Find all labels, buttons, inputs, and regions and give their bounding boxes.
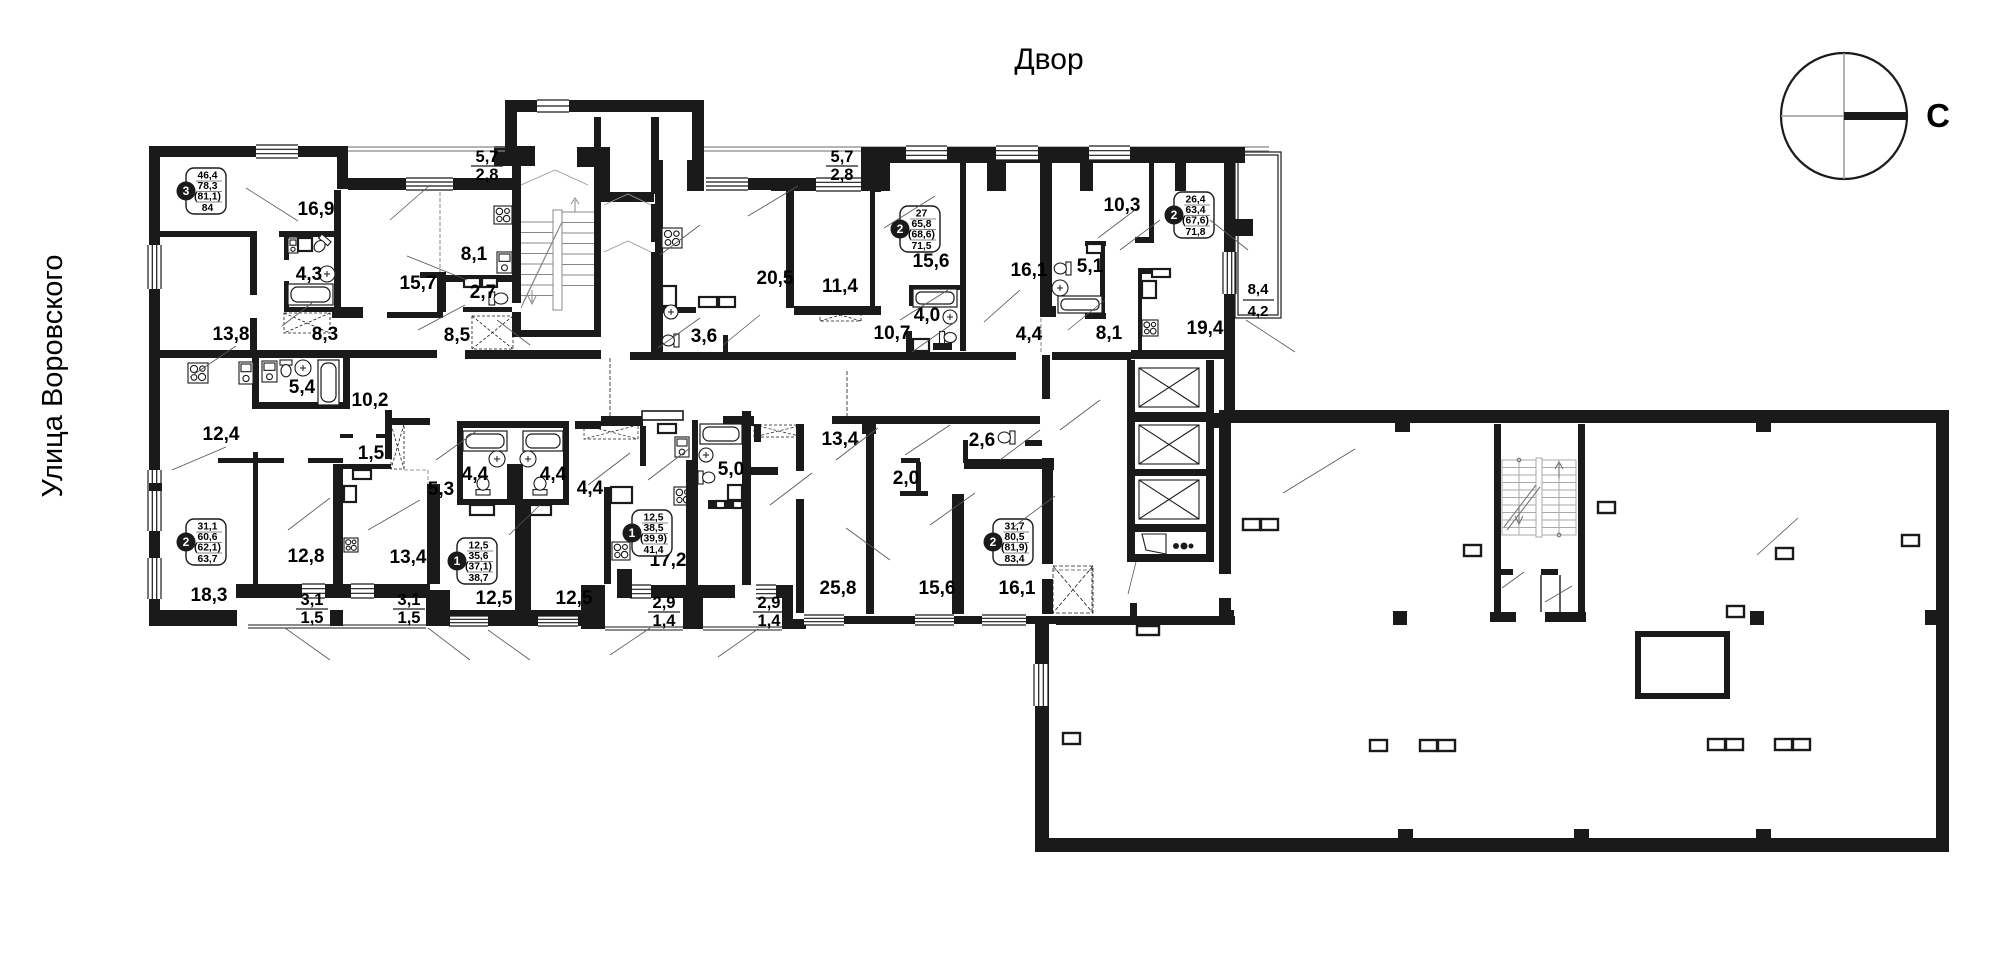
svg-text:12,5: 12,5 bbox=[468, 541, 488, 552]
svg-text:3,1: 3,1 bbox=[301, 591, 324, 609]
svg-text:8,1: 8,1 bbox=[1096, 323, 1123, 344]
svg-text:46,4: 46,4 bbox=[197, 171, 217, 182]
svg-text:10,3: 10,3 bbox=[1104, 195, 1141, 216]
svg-text:8,4: 8,4 bbox=[1248, 281, 1270, 298]
svg-text:26,4: 26,4 bbox=[1185, 195, 1205, 206]
svg-text:2,6: 2,6 bbox=[969, 430, 995, 451]
svg-text:13,4: 13,4 bbox=[390, 547, 427, 568]
svg-text:38,5: 38,5 bbox=[643, 523, 663, 534]
svg-text:19,4: 19,4 bbox=[1187, 318, 1224, 339]
svg-text:3: 3 bbox=[183, 184, 190, 198]
svg-text:78,3: 78,3 bbox=[197, 181, 217, 192]
svg-text:12,5: 12,5 bbox=[643, 513, 663, 524]
svg-text:2,7: 2,7 bbox=[470, 282, 496, 303]
svg-text:10,2: 10,2 bbox=[352, 390, 389, 411]
svg-text:2,8: 2,8 bbox=[831, 166, 854, 184]
svg-text:2: 2 bbox=[1171, 208, 1178, 222]
svg-text:63,7: 63,7 bbox=[197, 554, 217, 565]
svg-text:71,8: 71,8 bbox=[1185, 227, 1205, 238]
svg-text:16,1: 16,1 bbox=[999, 578, 1036, 599]
svg-text:12,4: 12,4 bbox=[203, 424, 240, 445]
svg-text:4,3: 4,3 bbox=[296, 264, 322, 285]
svg-text:18,3: 18,3 bbox=[191, 585, 228, 606]
svg-text:2,8: 2,8 bbox=[476, 166, 499, 184]
svg-text:60,6: 60,6 bbox=[197, 532, 217, 543]
svg-text:(39,9): (39,9) bbox=[640, 534, 667, 545]
svg-text:12,8: 12,8 bbox=[288, 546, 325, 567]
svg-text:2,9: 2,9 bbox=[653, 594, 676, 612]
svg-text:Двор: Двор bbox=[1014, 43, 1083, 76]
svg-text:71,5: 71,5 bbox=[911, 241, 931, 252]
svg-text:12,5: 12,5 bbox=[476, 588, 513, 609]
svg-text:20,5: 20,5 bbox=[757, 268, 794, 289]
svg-text:2: 2 bbox=[990, 535, 997, 549]
svg-text:4,4: 4,4 bbox=[1016, 324, 1043, 345]
svg-text:(67,6): (67,6) bbox=[1182, 216, 1209, 227]
svg-text:31,1: 31,1 bbox=[197, 522, 217, 533]
svg-text:(81,9): (81,9) bbox=[1001, 543, 1028, 554]
svg-text:27: 27 bbox=[916, 209, 928, 220]
svg-text:31,7: 31,7 bbox=[1004, 522, 1024, 533]
svg-text:84: 84 bbox=[202, 203, 214, 214]
svg-text:4,4: 4,4 bbox=[540, 464, 567, 485]
svg-text:4,0: 4,0 bbox=[914, 305, 940, 326]
svg-text:38,7: 38,7 bbox=[468, 573, 488, 584]
svg-text:83,4: 83,4 bbox=[1004, 554, 1024, 565]
svg-text:12,5: 12,5 bbox=[556, 588, 593, 609]
svg-text:5,7: 5,7 bbox=[831, 148, 854, 166]
svg-text:1: 1 bbox=[454, 554, 461, 568]
svg-text:2: 2 bbox=[897, 222, 904, 236]
svg-text:5,3: 5,3 bbox=[428, 479, 454, 500]
svg-text:65,8: 65,8 bbox=[911, 219, 931, 230]
svg-text:8,1: 8,1 bbox=[461, 244, 488, 265]
svg-text:5,7: 5,7 bbox=[476, 148, 499, 166]
svg-text:5,0: 5,0 bbox=[718, 459, 744, 480]
svg-text:5,1: 5,1 bbox=[1077, 256, 1104, 277]
svg-text:15,7: 15,7 bbox=[400, 273, 437, 294]
svg-text:4,4: 4,4 bbox=[462, 464, 489, 485]
svg-text:2,9: 2,9 bbox=[758, 594, 781, 612]
svg-text:(37,1): (37,1) bbox=[465, 562, 492, 573]
svg-text:3,1: 3,1 bbox=[398, 591, 421, 609]
svg-text:13,8: 13,8 bbox=[213, 324, 250, 345]
svg-text:4,2: 4,2 bbox=[1248, 303, 1269, 320]
svg-text:1,5: 1,5 bbox=[358, 443, 385, 464]
svg-text:16,1: 16,1 bbox=[1011, 260, 1048, 281]
svg-text:1,5: 1,5 bbox=[398, 609, 421, 627]
svg-text:11,4: 11,4 bbox=[822, 276, 858, 297]
svg-text:41,4: 41,4 bbox=[643, 545, 663, 556]
svg-text:2: 2 bbox=[183, 535, 190, 549]
svg-text:2,0: 2,0 bbox=[893, 468, 919, 489]
svg-text:5,4: 5,4 bbox=[289, 377, 316, 398]
svg-text:35,6: 35,6 bbox=[468, 551, 488, 562]
svg-text:8,5: 8,5 bbox=[444, 325, 471, 346]
svg-text:80,5: 80,5 bbox=[1004, 532, 1024, 543]
svg-text:15,6: 15,6 bbox=[913, 251, 950, 272]
svg-text:3,6: 3,6 bbox=[691, 326, 717, 347]
svg-text:15,6: 15,6 bbox=[919, 578, 956, 599]
svg-text:4,4: 4,4 bbox=[577, 478, 604, 499]
svg-text:1: 1 bbox=[629, 526, 636, 540]
svg-text:16,9: 16,9 bbox=[298, 199, 335, 220]
svg-text:1,4: 1,4 bbox=[653, 612, 677, 630]
svg-text:8,3: 8,3 bbox=[312, 324, 338, 345]
svg-text:25,8: 25,8 bbox=[820, 578, 857, 599]
svg-text:1,4: 1,4 bbox=[758, 612, 782, 630]
svg-text:63,4: 63,4 bbox=[1185, 205, 1205, 216]
svg-text:Улица Воровского: Улица Воровского bbox=[37, 255, 69, 498]
svg-text:(81,1): (81,1) bbox=[194, 192, 221, 203]
svg-text:1,5: 1,5 bbox=[301, 609, 324, 627]
svg-text:С: С bbox=[1926, 97, 1950, 134]
svg-text:(68,6): (68,6) bbox=[908, 230, 935, 241]
svg-text:10,7: 10,7 bbox=[874, 323, 911, 344]
svg-text:(62,1): (62,1) bbox=[194, 543, 221, 554]
